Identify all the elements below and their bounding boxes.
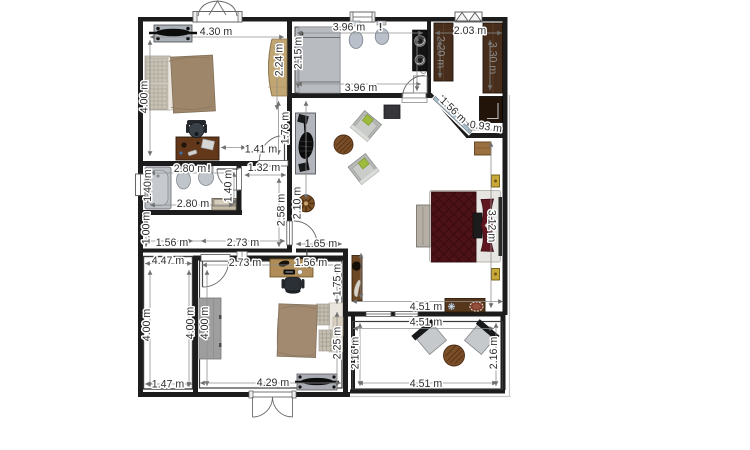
svg-text:4.29 m: 4.29 m [257,377,290,389]
svg-text:2.16 m: 2.16 m [488,337,500,370]
svg-text:1.00 m: 1.00 m [141,212,153,245]
svg-text:3.96 m: 3.96 m [333,22,366,34]
svg-text:1.32 m: 1.32 m [248,162,281,174]
svg-text:4.00 m: 4.00 m [141,309,153,342]
svg-text:2.20 m: 2.20 m [435,36,447,69]
svg-text:4.51 m: 4.51 m [410,317,443,329]
svg-text:!: ! [207,163,211,175]
svg-text:2.25 m: 2.25 m [332,327,344,360]
svg-text:1.75 m: 1.75 m [332,264,344,297]
svg-text:2.24 m: 2.24 m [274,44,286,77]
svg-text:1.56 m: 1.56 m [295,257,328,269]
svg-text:2.80 m: 2.80 m [174,163,207,175]
svg-text:2.73 m: 2.73 m [229,257,262,269]
svg-text:1.47 m: 1.47 m [152,379,185,391]
svg-text:2.80 m: 2.80 m [177,198,210,210]
svg-text:4.00 m: 4.00 m [185,307,197,340]
svg-text:4.30 m: 4.30 m [200,26,233,38]
svg-text:2.10 m: 2.10 m [292,187,304,220]
svg-text:2.15 m: 2.15 m [293,37,305,70]
svg-text:1.40 m: 1.40 m [142,169,154,202]
svg-text:4.00 m: 4.00 m [199,307,211,340]
svg-text:4.00 m: 4.00 m [139,81,151,114]
svg-text:1.56 m: 1.56 m [156,237,189,249]
svg-text:4.47 m: 4.47 m [152,255,185,267]
svg-text:4.51 m: 4.51 m [410,378,443,390]
svg-text:1.40 m: 1.40 m [223,170,235,203]
svg-text:4.51 m: 4.51 m [410,301,443,313]
svg-text:1.41 m: 1.41 m [245,144,278,156]
svg-text:2.73 m: 2.73 m [227,237,260,249]
svg-text:1.76 m: 1.76 m [280,112,292,145]
svg-text:1.65 m: 1.65 m [305,238,338,250]
svg-text:3.12 m: 3.12 m [486,210,498,243]
svg-text:2.16 m: 2.16 m [350,337,362,370]
svg-text:!: ! [379,22,383,34]
svg-text:3.96 m: 3.96 m [345,82,378,94]
svg-text:2.03 m: 2.03 m [454,25,487,37]
svg-text:3.30 m: 3.30 m [487,42,499,75]
svg-text:2.58 m: 2.58 m [276,194,288,227]
